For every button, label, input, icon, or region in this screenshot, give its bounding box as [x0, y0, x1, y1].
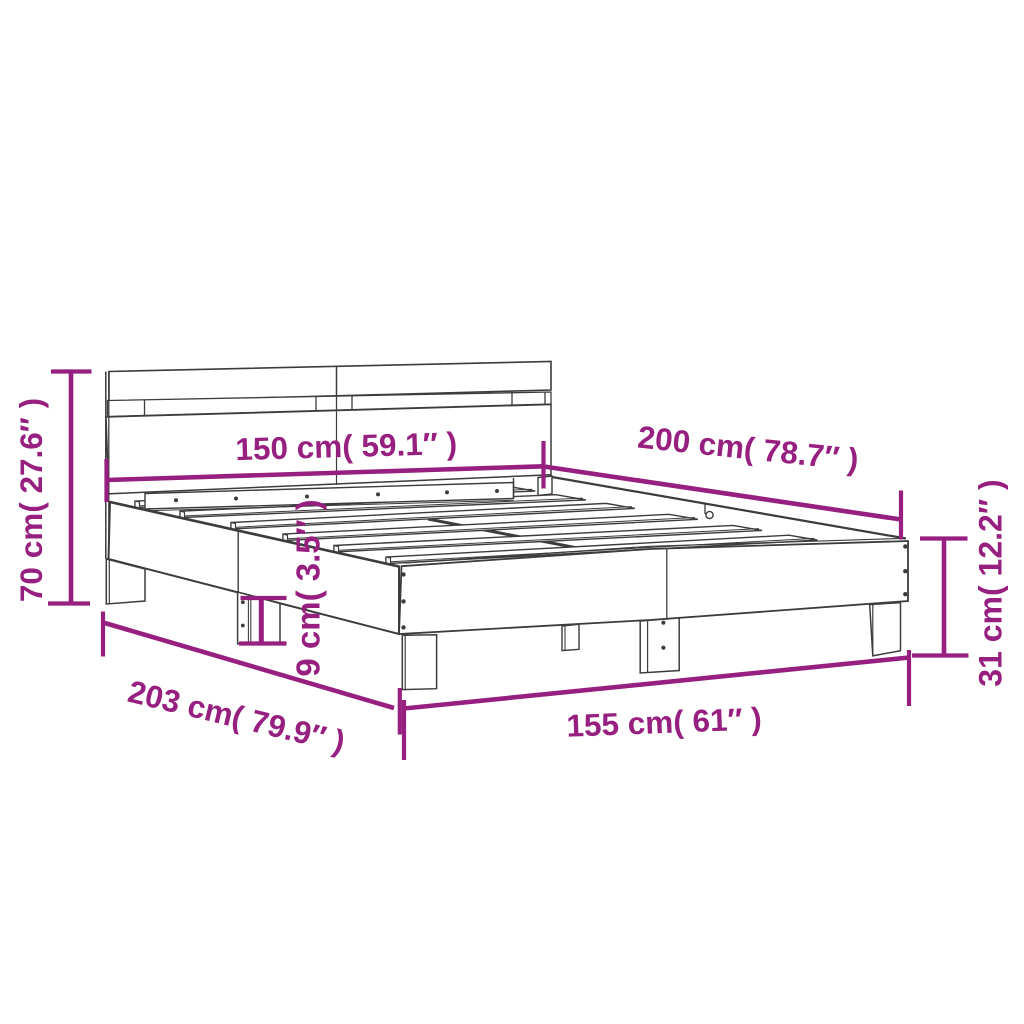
svg-text:150 cm( 59.1″ ): 150 cm( 59.1″ )	[235, 425, 458, 467]
svg-text:9 cm( 3.5″ ): 9 cm( 3.5″ )	[290, 499, 327, 676]
svg-text:155 cm( 61″ ): 155 cm( 61″ )	[566, 700, 763, 743]
svg-text:70 cm( 27.6″ ): 70 cm( 27.6″ )	[13, 398, 49, 602]
svg-text:31 cm( 12.2″ ): 31 cm( 12.2″ )	[973, 479, 1009, 686]
